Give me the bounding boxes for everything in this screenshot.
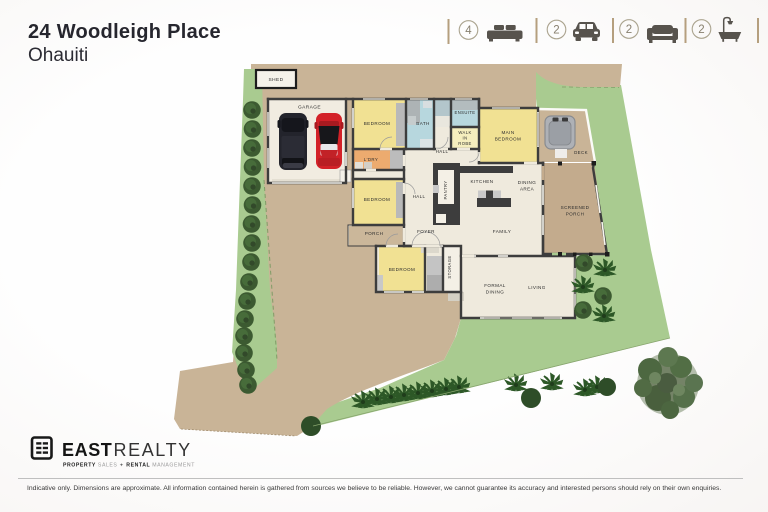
- svg-text:ROBE: ROBE: [458, 141, 471, 146]
- svg-text:PORCH: PORCH: [365, 231, 384, 236]
- svg-text:L'DRY: L'DRY: [364, 157, 378, 162]
- svg-text:AREA: AREA: [520, 187, 535, 192]
- svg-text:PANTRY: PANTRY: [443, 181, 448, 200]
- svg-text:EAST: EAST: [62, 440, 112, 460]
- svg-text:KITCHEN: KITCHEN: [471, 179, 494, 184]
- svg-text:BEDROOM: BEDROOM: [495, 137, 522, 142]
- svg-text:DECK: DECK: [574, 150, 588, 155]
- svg-text:FAMILY: FAMILY: [493, 229, 511, 234]
- svg-text:LIVING: LIVING: [528, 285, 545, 290]
- svg-text:DINING: DINING: [518, 180, 537, 185]
- svg-text:MAIN: MAIN: [501, 130, 514, 135]
- svg-text:PORCH: PORCH: [566, 212, 585, 217]
- svg-text:BEDROOM: BEDROOM: [389, 267, 416, 272]
- svg-text:WALK: WALK: [458, 130, 471, 135]
- svg-text:SHED: SHED: [269, 77, 284, 83]
- svg-text:SCREENED: SCREENED: [561, 205, 590, 210]
- svg-text:BEDROOM: BEDROOM: [364, 197, 391, 202]
- svg-text:ENSUITE: ENSUITE: [455, 110, 476, 115]
- svg-text:BEDROOM: BEDROOM: [364, 121, 391, 126]
- svg-text:GARAGE: GARAGE: [298, 105, 321, 111]
- svg-text:PROPERTY SALES ✦ RENTAL MANAGE: PROPERTY SALES ✦ RENTAL MANAGEMENT: [63, 463, 195, 469]
- svg-text:FORMAL: FORMAL: [484, 283, 506, 288]
- svg-text:HALL: HALL: [436, 149, 449, 154]
- svg-text:IN: IN: [463, 136, 468, 141]
- svg-text:DINING: DINING: [486, 290, 505, 295]
- svg-text:HALL: HALL: [413, 194, 426, 199]
- svg-text:BATH: BATH: [416, 121, 430, 126]
- svg-text:FOYER: FOYER: [417, 229, 435, 234]
- svg-text:REALTY: REALTY: [114, 440, 192, 460]
- svg-text:STORAGE: STORAGE: [447, 255, 452, 278]
